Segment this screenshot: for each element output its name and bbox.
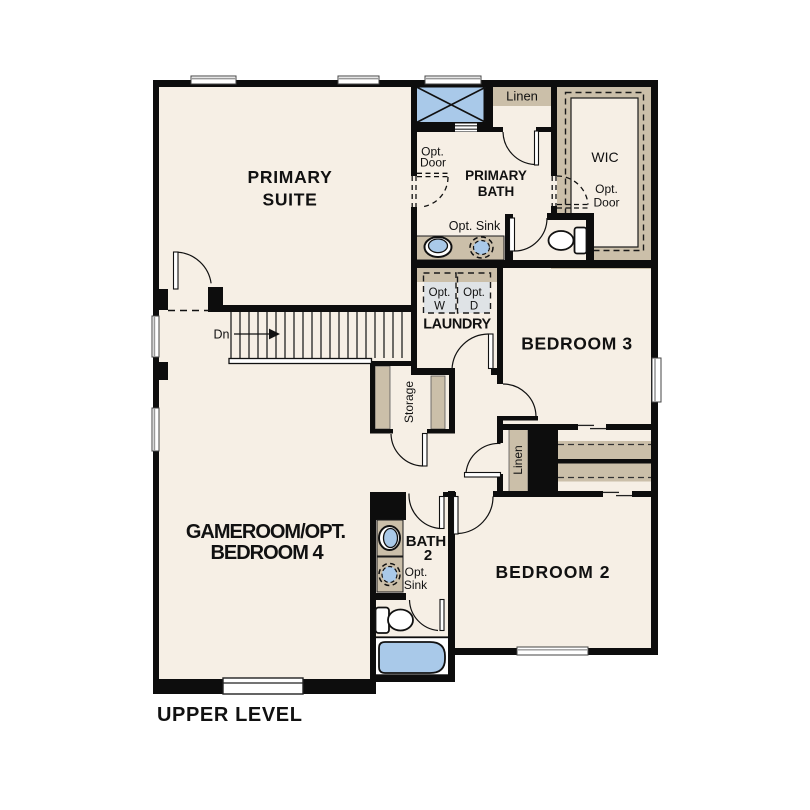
svg-text:BEDROOM 4: BEDROOM 4 bbox=[210, 542, 324, 564]
svg-text:Opt.: Opt. bbox=[405, 565, 428, 579]
svg-text:2: 2 bbox=[424, 547, 432, 564]
svg-text:W: W bbox=[434, 301, 445, 313]
svg-text:D: D bbox=[470, 301, 478, 313]
svg-text:WIC: WIC bbox=[591, 149, 618, 165]
svg-text:Opt.: Opt. bbox=[463, 287, 485, 299]
svg-text:BATH: BATH bbox=[478, 184, 515, 199]
svg-text:Storage: Storage bbox=[402, 381, 416, 423]
svg-text:BEDROOM 3: BEDROOM 3 bbox=[521, 334, 632, 354]
svg-text:BEDROOM 2: BEDROOM 2 bbox=[496, 562, 611, 582]
svg-text:Opt.: Opt. bbox=[429, 287, 451, 299]
svg-text:Door: Door bbox=[420, 156, 446, 170]
svg-text:UPPER LEVEL: UPPER LEVEL bbox=[157, 704, 303, 726]
svg-text:Opt.: Opt. bbox=[595, 182, 618, 196]
svg-text:PRIMARY: PRIMARY bbox=[465, 168, 527, 183]
svg-text:Linen: Linen bbox=[511, 445, 525, 474]
svg-text:Door: Door bbox=[593, 196, 619, 210]
svg-text:LAUNDRY: LAUNDRY bbox=[423, 317, 491, 333]
svg-text:SUITE: SUITE bbox=[262, 190, 317, 210]
svg-text:Sink: Sink bbox=[404, 578, 428, 592]
svg-text:Linen: Linen bbox=[506, 89, 538, 104]
svg-text:Dn: Dn bbox=[214, 328, 230, 342]
svg-text:GAMEROOM/OPT.: GAMEROOM/OPT. bbox=[186, 521, 346, 543]
svg-text:PRIMARY: PRIMARY bbox=[248, 167, 333, 187]
svg-text:Opt. Sink: Opt. Sink bbox=[449, 219, 501, 233]
